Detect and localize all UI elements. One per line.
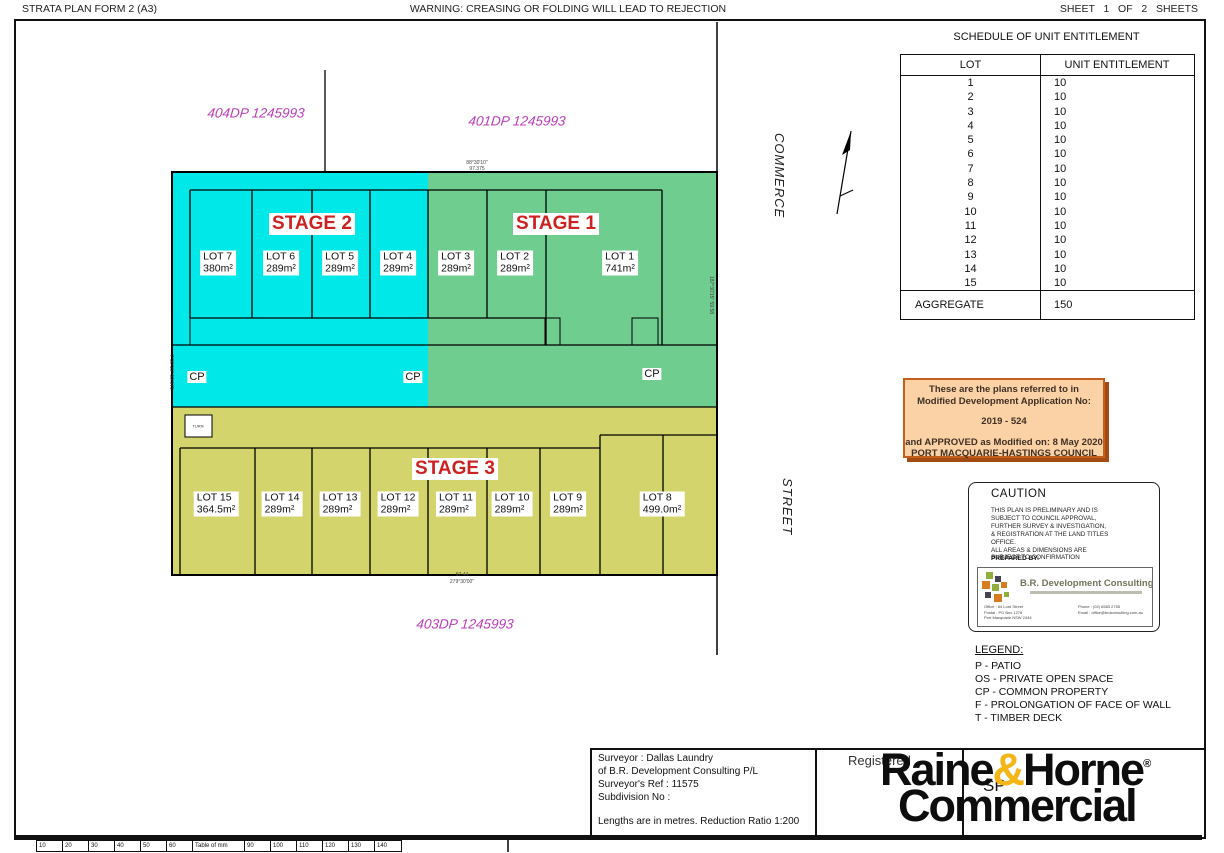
unit-entitlement-value: 10 <box>1040 219 1192 233</box>
unit-entitlement-value: 10 <box>1040 76 1192 90</box>
street-name-street: STREET <box>780 478 795 535</box>
approval-line: PORT MACQUARIE-HASTINGS COUNCIL <box>905 448 1103 460</box>
cp-label: CP <box>187 371 206 383</box>
unit-entitlement-value: 10 <box>1040 105 1192 119</box>
firm-logo-icon <box>985 592 991 598</box>
table-row: 910 <box>901 190 1194 204</box>
lot-number: 7 <box>901 162 1040 176</box>
lot-label: LOT 7380m² <box>200 251 236 276</box>
footer-divider <box>590 748 592 835</box>
cp-label: CP <box>642 368 661 380</box>
lot-name: LOT 15 <box>197 493 236 505</box>
unit-entitlement-value: 10 <box>1040 147 1192 161</box>
approval-stamp-box: These are the plans referred to in Modif… <box>903 378 1105 458</box>
lot-number: 15 <box>901 276 1040 290</box>
lot-number: 3 <box>901 105 1040 119</box>
ruler-cell: 30 <box>89 841 115 851</box>
lot-label: LOT 1741m² <box>602 251 638 276</box>
cp-label: CP <box>403 371 422 383</box>
lot-number: 4 <box>901 119 1040 133</box>
firm-contact-right: Phone : (02) 6583 2755 Email : office@br… <box>1078 604 1143 615</box>
lot-label: LOT 4289m² <box>380 251 416 276</box>
firm-logo-icon <box>1004 592 1009 597</box>
ruler-cell: 50 <box>141 841 167 851</box>
lot-number: 2 <box>901 90 1040 104</box>
lot-name: LOT 14 <box>265 493 300 505</box>
unit-entitlement-value: 10 <box>1040 176 1192 190</box>
logo-commercial: Commercial <box>898 786 1198 826</box>
table-row: 1310 <box>901 248 1194 262</box>
lot-label: LOT 10289m² <box>492 492 533 517</box>
dimension-left: 7°30'15" 59.575 <box>168 354 174 389</box>
table-row: 1010 <box>901 205 1194 219</box>
lot-label: LOT 3289m² <box>438 251 474 276</box>
lot-area: 289m² <box>439 504 473 516</box>
lot-name: LOT 12 <box>381 493 416 505</box>
schedule-table: LOT UNIT ENTITLEMENT 110 210 310 410 510… <box>900 54 1195 320</box>
lot-label: LOT 13289m² <box>320 492 361 517</box>
lot-name: LOT 2 <box>500 252 530 264</box>
ruler-cell-table-of-mm: Table of mm <box>193 841 245 851</box>
unit-entitlement-value: 10 <box>1040 276 1192 290</box>
firm-logo-icon <box>992 584 999 591</box>
ruler-cell: 60 <box>167 841 193 851</box>
lot-number: 14 <box>901 262 1040 276</box>
lot-label: LOT 11289m² <box>436 492 476 517</box>
lot-name: LOT 3 <box>441 252 471 264</box>
lot-area: 289m² <box>265 504 300 516</box>
lot-label: LOT 9289m² <box>550 492 586 517</box>
firm-logo-icon <box>994 594 1002 602</box>
firm-logo-icon <box>982 581 990 589</box>
lot-area: 289m² <box>495 504 530 516</box>
table-row: 210 <box>901 90 1194 104</box>
street-name-commerce: COMMERCE <box>772 133 787 218</box>
lot-number: 1 <box>901 76 1040 90</box>
prepared-by-label: PREPARED BY: <box>991 555 1039 562</box>
firm-logo-box: B.R. Development Consulting Office : 64 … <box>977 567 1153 627</box>
lot-area: 289m² <box>381 504 416 516</box>
lot-label: LOT 5289m² <box>322 251 358 276</box>
lot-number: 10 <box>901 205 1040 219</box>
strata-plan-page: STRATA PLAN FORM 2 (A3) WARNING: CREASIN… <box>0 0 1224 853</box>
lot-name: LOT 1 <box>605 252 635 264</box>
lot-area: 289m² <box>553 504 583 516</box>
lot-label: LOT 12289m² <box>378 492 419 517</box>
lot-number: 8 <box>901 176 1040 190</box>
dp-label-401: 401DP 1245993 <box>468 114 567 129</box>
unit-entitlement-value: 10 <box>1040 90 1192 104</box>
unit-entitlement-value: 10 <box>1040 248 1192 262</box>
lot-area: 289m² <box>266 263 296 275</box>
dimension-right: 187°30'15" 59.58 <box>708 276 714 314</box>
dp-label-404: 404DP 1245993 <box>207 106 306 121</box>
approval-number: 2019 - 524 <box>905 416 1103 428</box>
lot-area: 741m² <box>605 263 635 275</box>
lot-area: 289m² <box>325 263 355 275</box>
lot-name: LOT 6 <box>266 252 296 264</box>
lot-name: LOT 10 <box>495 493 530 505</box>
lot-label: LOT 2289m² <box>497 251 533 276</box>
table-row: 510 <box>901 133 1194 147</box>
dimension-top-distance: 97.375 <box>469 166 484 172</box>
table-row: 1410 <box>901 262 1194 276</box>
unit-entitlement-value: 10 <box>1040 205 1192 219</box>
lot-name: LOT 8 <box>643 493 682 505</box>
table-row: 1510 <box>901 276 1194 290</box>
column-header-entitlement: UNIT ENTITLEMENT <box>1040 55 1193 75</box>
lot-label: LOT 8499.0m² <box>640 492 685 517</box>
table-row: 410 <box>901 119 1194 133</box>
lot-area: 289m² <box>383 263 413 275</box>
approval-line: These are the plans referred to in <box>905 384 1103 396</box>
dp-label-403: 403DP 1245993 <box>416 617 515 632</box>
ruler-cell: 90 <box>245 841 271 851</box>
surveyor-details: Surveyor : Dallas Laundry of B.R. Develo… <box>598 752 758 804</box>
table-row: 1210 <box>901 233 1194 247</box>
lot-area: 289m² <box>323 504 358 516</box>
table-row: 110 <box>901 76 1194 90</box>
aggregate-value: 150 <box>1040 291 1192 319</box>
stage1-label: STAGE 1 <box>513 213 599 235</box>
lot-name: LOT 13 <box>323 493 358 505</box>
lot-area: 289m² <box>500 263 530 275</box>
lot-name: LOT 4 <box>383 252 413 264</box>
unit-entitlement-value: 10 <box>1040 133 1192 147</box>
aggregate-row: AGGREGATE 150 <box>901 290 1194 319</box>
aggregate-label: AGGREGATE <box>901 299 1040 311</box>
lot-area: 364.5m² <box>197 504 236 516</box>
firm-logo-icon <box>986 572 993 579</box>
column-header-lot: LOT <box>901 59 1040 71</box>
lot-area: 380m² <box>203 263 233 275</box>
registered-trademark-icon: ® <box>1143 758 1151 770</box>
lot-label: LOT 14289m² <box>262 492 303 517</box>
lot-number: 6 <box>901 147 1040 161</box>
legend-items: P - PATIO OS - PRIVATE OPEN SPACE CP - C… <box>975 660 1171 725</box>
raine-horne-logo: Raine&Horne® Commercial <box>880 744 1198 826</box>
stage3-label: STAGE 3 <box>412 458 498 480</box>
schedule-title: SCHEDULE OF UNIT ENTITLEMENT <box>900 31 1193 43</box>
lot-number: 9 <box>901 190 1040 204</box>
unit-entitlement-value: 10 <box>1040 233 1192 247</box>
lot-area: 499.0m² <box>643 504 682 516</box>
lot-name: LOT 5 <box>325 252 355 264</box>
stage2-area <box>172 172 428 407</box>
lot-label: LOT 6289m² <box>263 251 299 276</box>
lot-number: 12 <box>901 233 1040 247</box>
lot-number: 11 <box>901 219 1040 233</box>
lot-number: 5 <box>901 133 1040 147</box>
dimension-bottom-bearing: 279°30'00" <box>450 579 474 585</box>
firm-tagline-bar <box>1030 591 1142 594</box>
unit-entitlement-value: 10 <box>1040 119 1192 133</box>
caution-title: CAUTION <box>991 488 1046 500</box>
ruler-cell: 20 <box>63 841 89 851</box>
table-row: 810 <box>901 176 1194 190</box>
unit-entitlement-value: 10 <box>1040 262 1192 276</box>
table-row: 310 <box>901 105 1194 119</box>
stage2-label: STAGE 2 <box>269 213 355 235</box>
unit-entitlement-value: 10 <box>1040 190 1192 204</box>
lot-name: LOT 7 <box>203 252 233 264</box>
ruler-cell: 130 <box>349 841 375 851</box>
schedule-header-row: LOT UNIT ENTITLEMENT <box>901 55 1194 76</box>
lot-area: 289m² <box>441 263 471 275</box>
ruler-cell: 100 <box>271 841 297 851</box>
lot-number: 13 <box>901 248 1040 262</box>
lot-name: LOT 11 <box>439 493 473 505</box>
ruler-cell: 110 <box>297 841 323 851</box>
legend-title: LEGEND: <box>975 644 1171 656</box>
ruler-cell: 120 <box>323 841 349 851</box>
table-row: 610 <box>901 147 1194 161</box>
table-row: 710 <box>901 162 1194 176</box>
stage1-area <box>428 172 718 407</box>
caution-box: CAUTION THIS PLAN IS PRELIMINARY AND IS … <box>968 482 1160 632</box>
legend: LEGEND: P - PATIO OS - PRIVATE OPEN SPAC… <box>975 644 1171 725</box>
lot-name: LOT 9 <box>553 493 583 505</box>
ruler-cell: 140 <box>375 841 401 851</box>
table-row: 1110 <box>901 219 1194 233</box>
ruler-cell: 10 <box>37 841 63 851</box>
firm-logo-icon <box>1001 582 1007 588</box>
turn-label: TURN <box>192 424 203 429</box>
footer-divider <box>815 748 817 835</box>
approval-line: and APPROVED as Modified on: 8 May 2020 <box>905 437 1103 449</box>
dimension-bottom-distance: 97.44 <box>456 572 469 578</box>
lengths-note: Lengths are in metres. Reduction Ratio 1… <box>598 816 799 827</box>
mm-ruler: 10 20 30 40 50 60 Table of mm 90 100 110… <box>36 840 402 852</box>
ruler-cell: 40 <box>115 841 141 851</box>
approval-line: Modified Development Application No: <box>905 396 1103 408</box>
north-arrow-head <box>842 131 851 155</box>
firm-contact-left: Office : 64 Lord Street Postal : PO Box … <box>984 604 1032 621</box>
north-arrow-tick <box>840 190 853 196</box>
firm-name: B.R. Development Consulting <box>1020 578 1154 589</box>
lot-label: LOT 15364.5m² <box>194 492 239 517</box>
unit-entitlement-value: 10 <box>1040 162 1192 176</box>
